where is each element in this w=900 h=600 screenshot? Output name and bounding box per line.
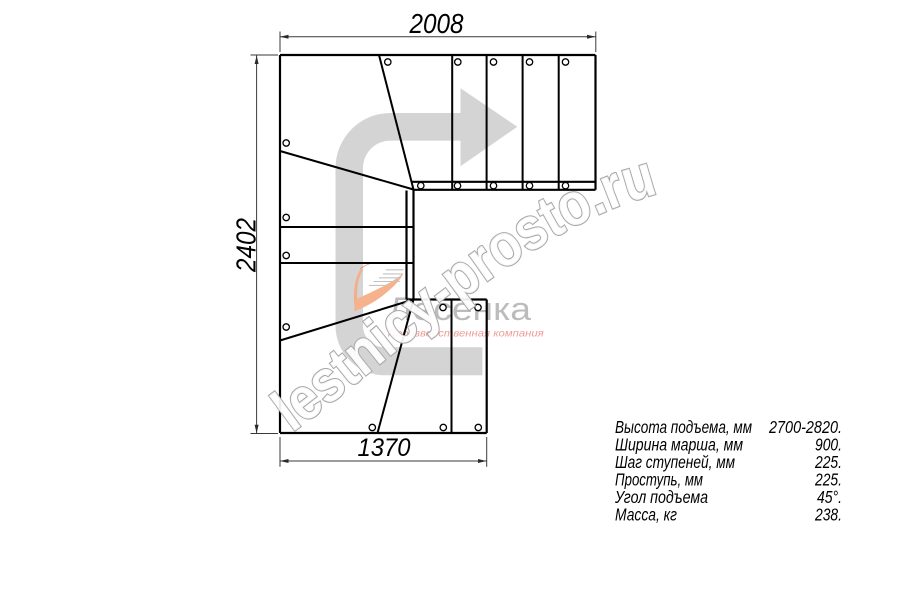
- svg-text:238.: 238.: [814, 505, 842, 525]
- svg-text:1370: 1370: [358, 434, 411, 462]
- svg-text:2402: 2402: [230, 218, 261, 273]
- svg-text:Масса, кг: Масса, кг: [615, 505, 677, 525]
- svg-text:2008: 2008: [409, 8, 464, 39]
